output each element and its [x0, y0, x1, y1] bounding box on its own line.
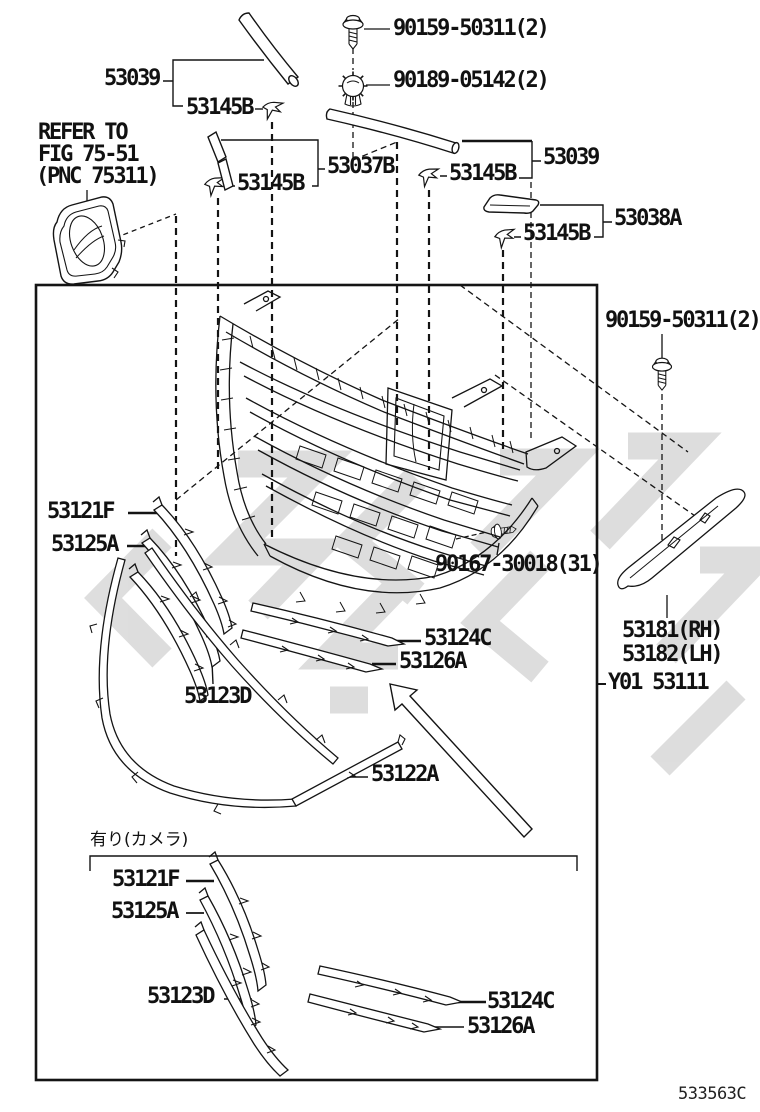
pn-53123d-bottom: 53123D	[147, 986, 213, 1008]
pn-53038a: 53038A	[614, 208, 680, 230]
refer-note-line2: FIG 75-51	[38, 144, 137, 166]
pn-53123d-top: 53123D	[184, 686, 250, 708]
pn-53125a-top: 53125A	[51, 534, 117, 556]
pn-53122a: 53122A	[371, 764, 437, 786]
pn-53145b-1: 53145B	[186, 97, 252, 119]
pn-90189-05142: 90189-05142(2)	[393, 70, 548, 92]
pn-53126a-bottom: 53126A	[467, 1016, 533, 1038]
pn-90159-50311-right: 90159-50311(2)	[605, 310, 760, 332]
pn-53145b-2: 53145B	[237, 173, 303, 195]
refer-note-line3: (PNC 75311)	[36, 166, 158, 188]
pn-53181-rh: 53181(RH)	[622, 620, 721, 642]
pn-53121f-top: 53121F	[47, 501, 113, 523]
pn-53145b-4: 53145B	[523, 223, 589, 245]
pn-53126a-top: 53126A	[399, 651, 465, 673]
camera-note: 有り(カメラ)	[90, 832, 188, 849]
pn-90159-50311-top: 90159-50311(2)	[393, 18, 548, 40]
parts-diagram-page: 90159-50311(2)90189-05142(2)5303953145BR…	[0, 0, 760, 1112]
pn-53039-right: 53039	[543, 147, 598, 169]
pn-53124c-top: 53124C	[424, 628, 490, 650]
pn-53145b-3: 53145B	[449, 163, 515, 185]
pn-y01-53111: Y01 53111	[608, 672, 707, 694]
pn-53182-lh: 53182(LH)	[622, 644, 721, 666]
pn-90167-30018: 90167-30018(31)	[435, 554, 601, 576]
pn-53124c-bottom: 53124C	[487, 991, 553, 1013]
pn-53037b: 53037B	[327, 156, 393, 178]
doc-code: 533563C	[678, 1086, 746, 1103]
pn-53121f-bottom: 53121F	[112, 869, 178, 891]
pn-53125a-bottom: 53125A	[111, 901, 177, 923]
refer-note-line1: REFER TO	[38, 122, 126, 144]
pn-53039-left: 53039	[104, 68, 159, 90]
callout-labels: 90159-50311(2)90189-05142(2)5303953145BR…	[0, 0, 760, 1112]
